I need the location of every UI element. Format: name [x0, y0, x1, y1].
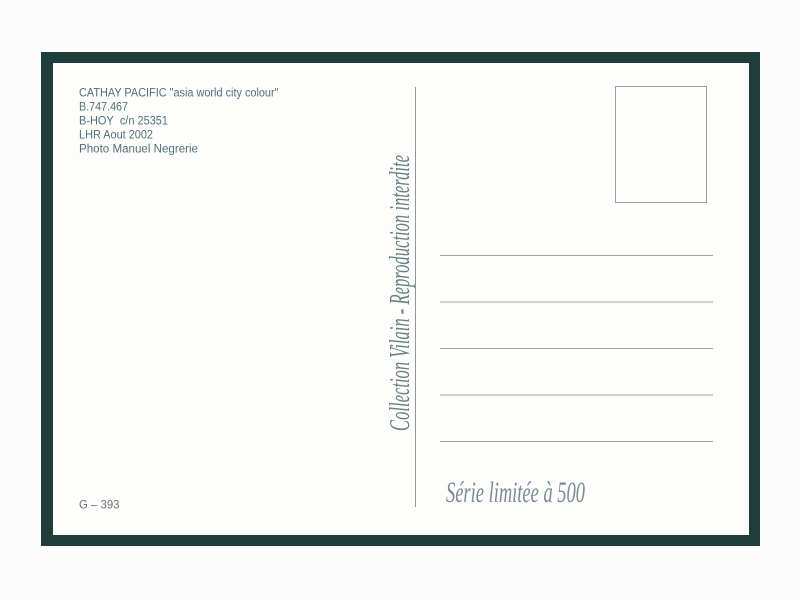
- svg-text:Collection Vilain - Reproducti: Collection Vilain - Reproduction interdi…: [385, 155, 416, 431]
- svg-text:G – 393: G – 393: [79, 498, 120, 512]
- svg-text:B-HOY c/n 25351: B-HOY c/n 25351: [79, 113, 168, 127]
- svg-text:CATHAY PACIFIC "asia world cit: CATHAY PACIFIC "asia world city colour": [79, 85, 279, 99]
- svg-text:B.747.467: B.747.467: [79, 99, 128, 113]
- svg-text:Série limitée à 500: Série limitée à 500: [446, 476, 585, 509]
- svg-text:LHR Aout 2002: LHR Aout 2002: [79, 127, 153, 141]
- svg-text:Photo Manuel Negrerie: Photo Manuel Negrerie: [79, 141, 198, 155]
